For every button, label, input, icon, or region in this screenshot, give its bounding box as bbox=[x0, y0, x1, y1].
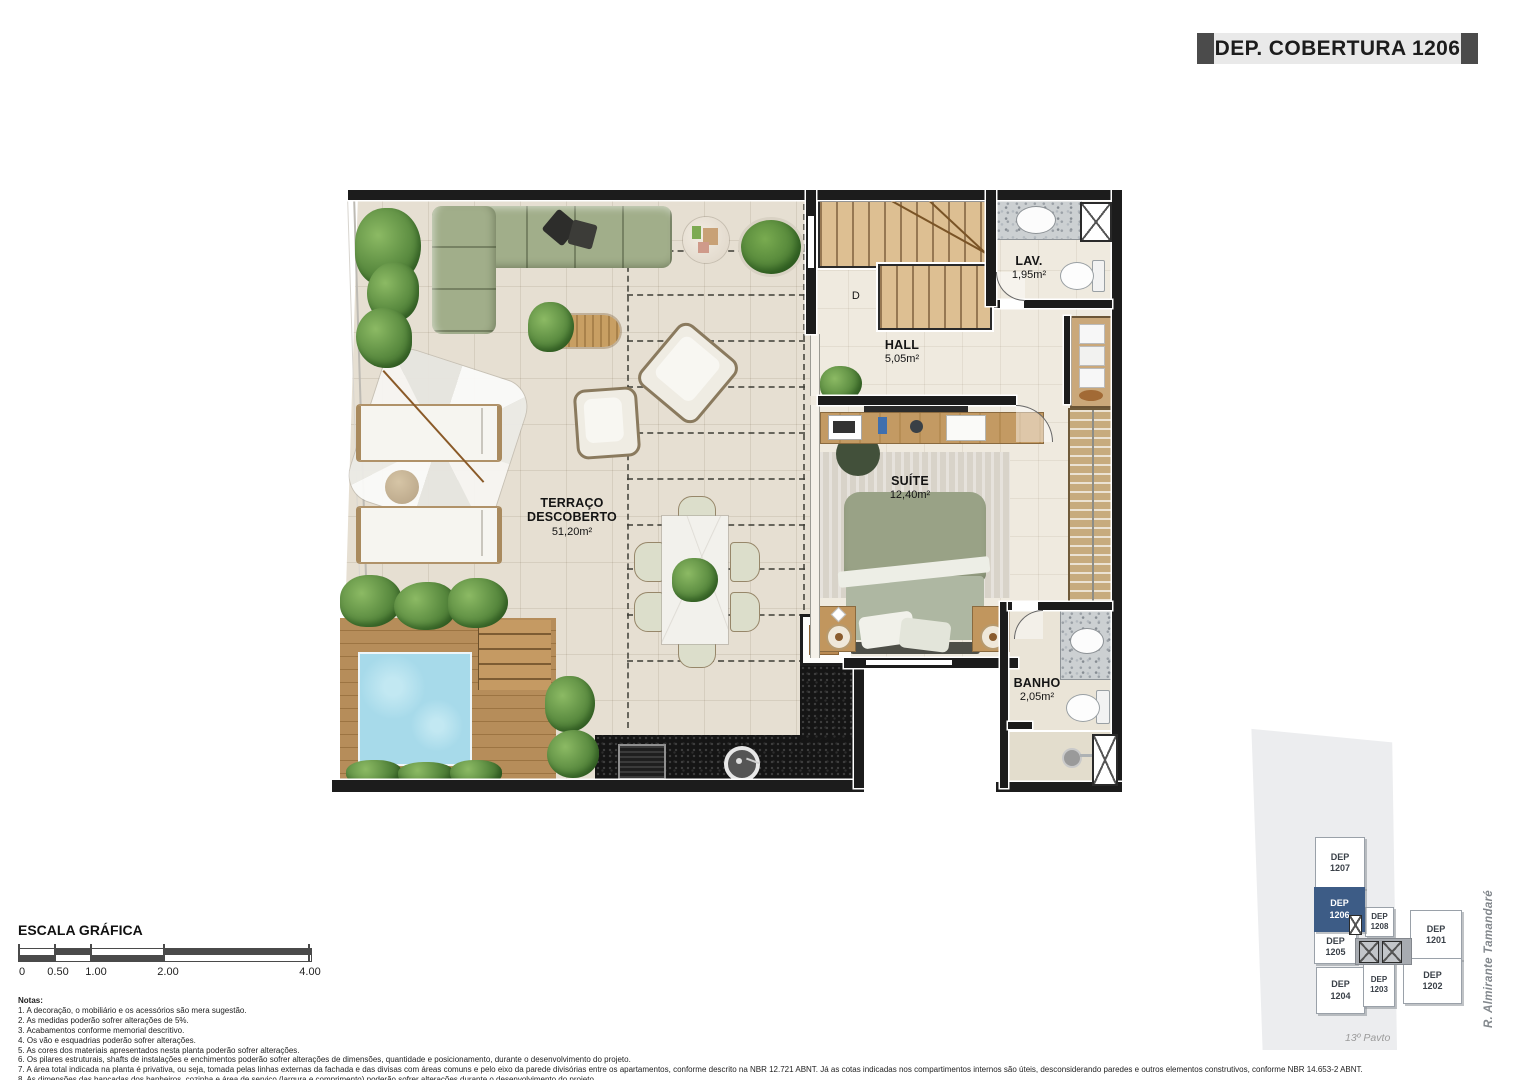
wall-stairs-lav-divider bbox=[986, 190, 996, 306]
note-line: 2. As medidas poderão sofrer alterações … bbox=[18, 1016, 1363, 1026]
scale-segment bbox=[92, 955, 165, 961]
wall-right bbox=[1112, 190, 1122, 792]
bar-cart-item bbox=[692, 226, 701, 239]
cabinet-shelf bbox=[1079, 346, 1105, 366]
banho-door-opening bbox=[1012, 602, 1038, 610]
suite-label: SUÍTE 12,40m² bbox=[860, 474, 960, 502]
dashed-projection-line bbox=[627, 294, 805, 296]
cabinet-shelf bbox=[1079, 324, 1105, 344]
sofa-vertical bbox=[432, 206, 496, 334]
desk-bowl bbox=[910, 420, 923, 433]
floor-level-label: 13º Pavto bbox=[1345, 1032, 1390, 1044]
terraco-label: TERRAÇO DESCOBERTO 51,20m² bbox=[497, 496, 647, 538]
deck-steps bbox=[478, 620, 551, 690]
floor-plan-page: DEP. COBERTURA 1206 bbox=[0, 0, 1527, 1080]
dining-chair bbox=[634, 592, 664, 632]
lav-toilet bbox=[1060, 262, 1094, 290]
lav-sink bbox=[1016, 206, 1056, 234]
dashed-projection-line bbox=[627, 246, 629, 728]
plant bbox=[356, 308, 412, 368]
scale-segment bbox=[19, 955, 56, 961]
wall-corridor bbox=[1064, 316, 1070, 404]
pouf bbox=[385, 470, 419, 504]
scale-tick bbox=[308, 944, 310, 962]
banner-left-block bbox=[1197, 33, 1214, 64]
hall-label: HALL 5,05m² bbox=[852, 338, 952, 366]
plant bbox=[547, 730, 599, 778]
dining-chair bbox=[634, 542, 664, 582]
wall-top bbox=[348, 190, 1122, 200]
tv bbox=[864, 406, 968, 412]
scale-tick bbox=[163, 944, 165, 962]
keyplan-core-shaft bbox=[1382, 941, 1402, 963]
note-line: 4. Os vão e esquadrias poderão sofrer al… bbox=[18, 1036, 1363, 1046]
fire-pit bbox=[724, 746, 760, 782]
scale-bar-graphic bbox=[18, 948, 312, 962]
wall-notch-left bbox=[854, 658, 864, 788]
keyplan-unit-1208: DEP 1208 bbox=[1365, 907, 1394, 937]
floor-plan: D LAV. 1,95m² HALL 5,05m² bbox=[332, 190, 1124, 794]
cabinet-tray bbox=[1079, 390, 1103, 401]
note-line: 3. Acabamentos conforme memorial descrit… bbox=[18, 1026, 1363, 1036]
wall-terrace-bottom bbox=[332, 780, 864, 792]
scale-tick-label: 0 bbox=[19, 966, 25, 978]
shaft-box bbox=[1092, 734, 1118, 786]
cabinet-shelf bbox=[1079, 368, 1105, 388]
exterior-notch bbox=[858, 668, 1000, 794]
stairs-lower-flight bbox=[878, 264, 992, 330]
key-plan: DEP 1207 DEP 1206 DEP 1208 DEP 1205 DEP … bbox=[1245, 712, 1507, 1060]
keyplan-shaft bbox=[1349, 915, 1362, 935]
note-line: 7. A área total indicada na planta é pri… bbox=[18, 1065, 1363, 1075]
scale-title: ESCALA GRÁFICA bbox=[18, 922, 328, 938]
lav-door-opening bbox=[1000, 300, 1024, 308]
desk-book bbox=[878, 417, 887, 434]
banner-right-block bbox=[1461, 33, 1478, 64]
wardrobe bbox=[1068, 408, 1116, 610]
keyplan-core-shaft bbox=[1359, 941, 1379, 963]
keyplan-unit-1203: DEP 1203 bbox=[1363, 962, 1395, 1007]
lounge-chair-cushion bbox=[653, 333, 723, 404]
laptop-keyboard bbox=[833, 421, 855, 433]
dashed-projection-line bbox=[627, 478, 805, 480]
stair-door-label: D bbox=[846, 290, 866, 303]
keyplan-unit-1204: DEP 1204 bbox=[1316, 967, 1365, 1014]
nightstand-deco bbox=[831, 607, 847, 623]
sun-lounger bbox=[356, 506, 502, 564]
scale-tick-label: 0.50 bbox=[47, 966, 68, 978]
scale-tick-label: 2.00 bbox=[157, 966, 178, 978]
shaft-box bbox=[1080, 202, 1112, 242]
pool bbox=[358, 652, 472, 766]
keyplan-unit-1201: DEP 1201 bbox=[1410, 910, 1462, 960]
wall-hall-suite-divider bbox=[818, 396, 1016, 405]
terrace-hall-glass-door bbox=[810, 334, 820, 396]
notes: Notas: 1. A decoração, o mobiliário e os… bbox=[18, 996, 1363, 1080]
keyplan-unit-1207: DEP 1207 bbox=[1315, 837, 1365, 889]
suite-glass-wall bbox=[810, 405, 820, 658]
scale-tick bbox=[18, 944, 20, 962]
dark-pavement bbox=[800, 665, 856, 739]
floor-grill bbox=[618, 744, 666, 780]
note-line: 6. Os pilares estruturais, shafts de ins… bbox=[18, 1055, 1363, 1065]
stairs-window bbox=[808, 216, 814, 268]
dashed-projection-line bbox=[627, 432, 805, 434]
laptop bbox=[828, 415, 862, 440]
suite-window bbox=[866, 660, 952, 665]
scale-tick bbox=[54, 944, 56, 962]
keyplan-core bbox=[1355, 938, 1412, 965]
shower-head bbox=[1062, 748, 1082, 768]
wall-shower-stub bbox=[1008, 722, 1032, 729]
dining-chair bbox=[678, 640, 716, 668]
banho-sink bbox=[1070, 628, 1104, 654]
dashed-projection-line bbox=[627, 340, 805, 342]
bed-cushion bbox=[898, 617, 951, 653]
plant bbox=[394, 582, 456, 630]
fire-pit-center bbox=[736, 758, 742, 764]
title-banner: DEP. COBERTURA 1206 bbox=[1197, 33, 1478, 64]
lounger-seam bbox=[481, 408, 483, 454]
lounge-chair bbox=[573, 386, 642, 460]
scale-tick-label: 1.00 bbox=[85, 966, 106, 978]
dining-chair bbox=[730, 592, 760, 632]
lounge-chair-cushion bbox=[583, 397, 624, 444]
scale-segment bbox=[165, 949, 311, 955]
lav-label: LAV. 1,95m² bbox=[996, 254, 1062, 282]
hall-cabinet bbox=[1070, 316, 1116, 408]
nightstand-lamp bbox=[826, 624, 852, 650]
note-line: 1. A decoração, o mobiliário e os acessó… bbox=[18, 1006, 1363, 1016]
dashed-projection-line bbox=[627, 660, 805, 662]
banho-label: BANHO 2,05m² bbox=[996, 676, 1078, 704]
sun-lounger bbox=[356, 404, 502, 462]
note-line: 8. As dimensões das bancadas dos banheir… bbox=[18, 1075, 1363, 1080]
bar-cart-item bbox=[698, 242, 709, 253]
notes-heading: Notas: bbox=[18, 996, 1363, 1006]
keyplan-unit-1205: DEP 1205 bbox=[1314, 930, 1357, 964]
scale-tick-label: 4.00 bbox=[299, 966, 320, 978]
note-line: 5. As cores dos materiais apresentados n… bbox=[18, 1046, 1363, 1056]
scale-bar: ESCALA GRÁFICA 0 0.50 1.00 2.00 4.00 bbox=[18, 922, 328, 982]
scale-segment bbox=[56, 949, 93, 955]
dining-chair bbox=[730, 542, 760, 582]
fire-pit-handle bbox=[746, 758, 760, 765]
lounger-seam bbox=[481, 510, 483, 556]
street-label: R. Almirante Tamandaré bbox=[1483, 890, 1495, 1028]
scale-tick bbox=[90, 944, 92, 962]
desk-notebook bbox=[946, 415, 986, 441]
potted-bush bbox=[738, 217, 804, 277]
wardrobe-rail bbox=[1092, 410, 1094, 608]
page-title: DEP. COBERTURA 1206 bbox=[1214, 33, 1461, 64]
